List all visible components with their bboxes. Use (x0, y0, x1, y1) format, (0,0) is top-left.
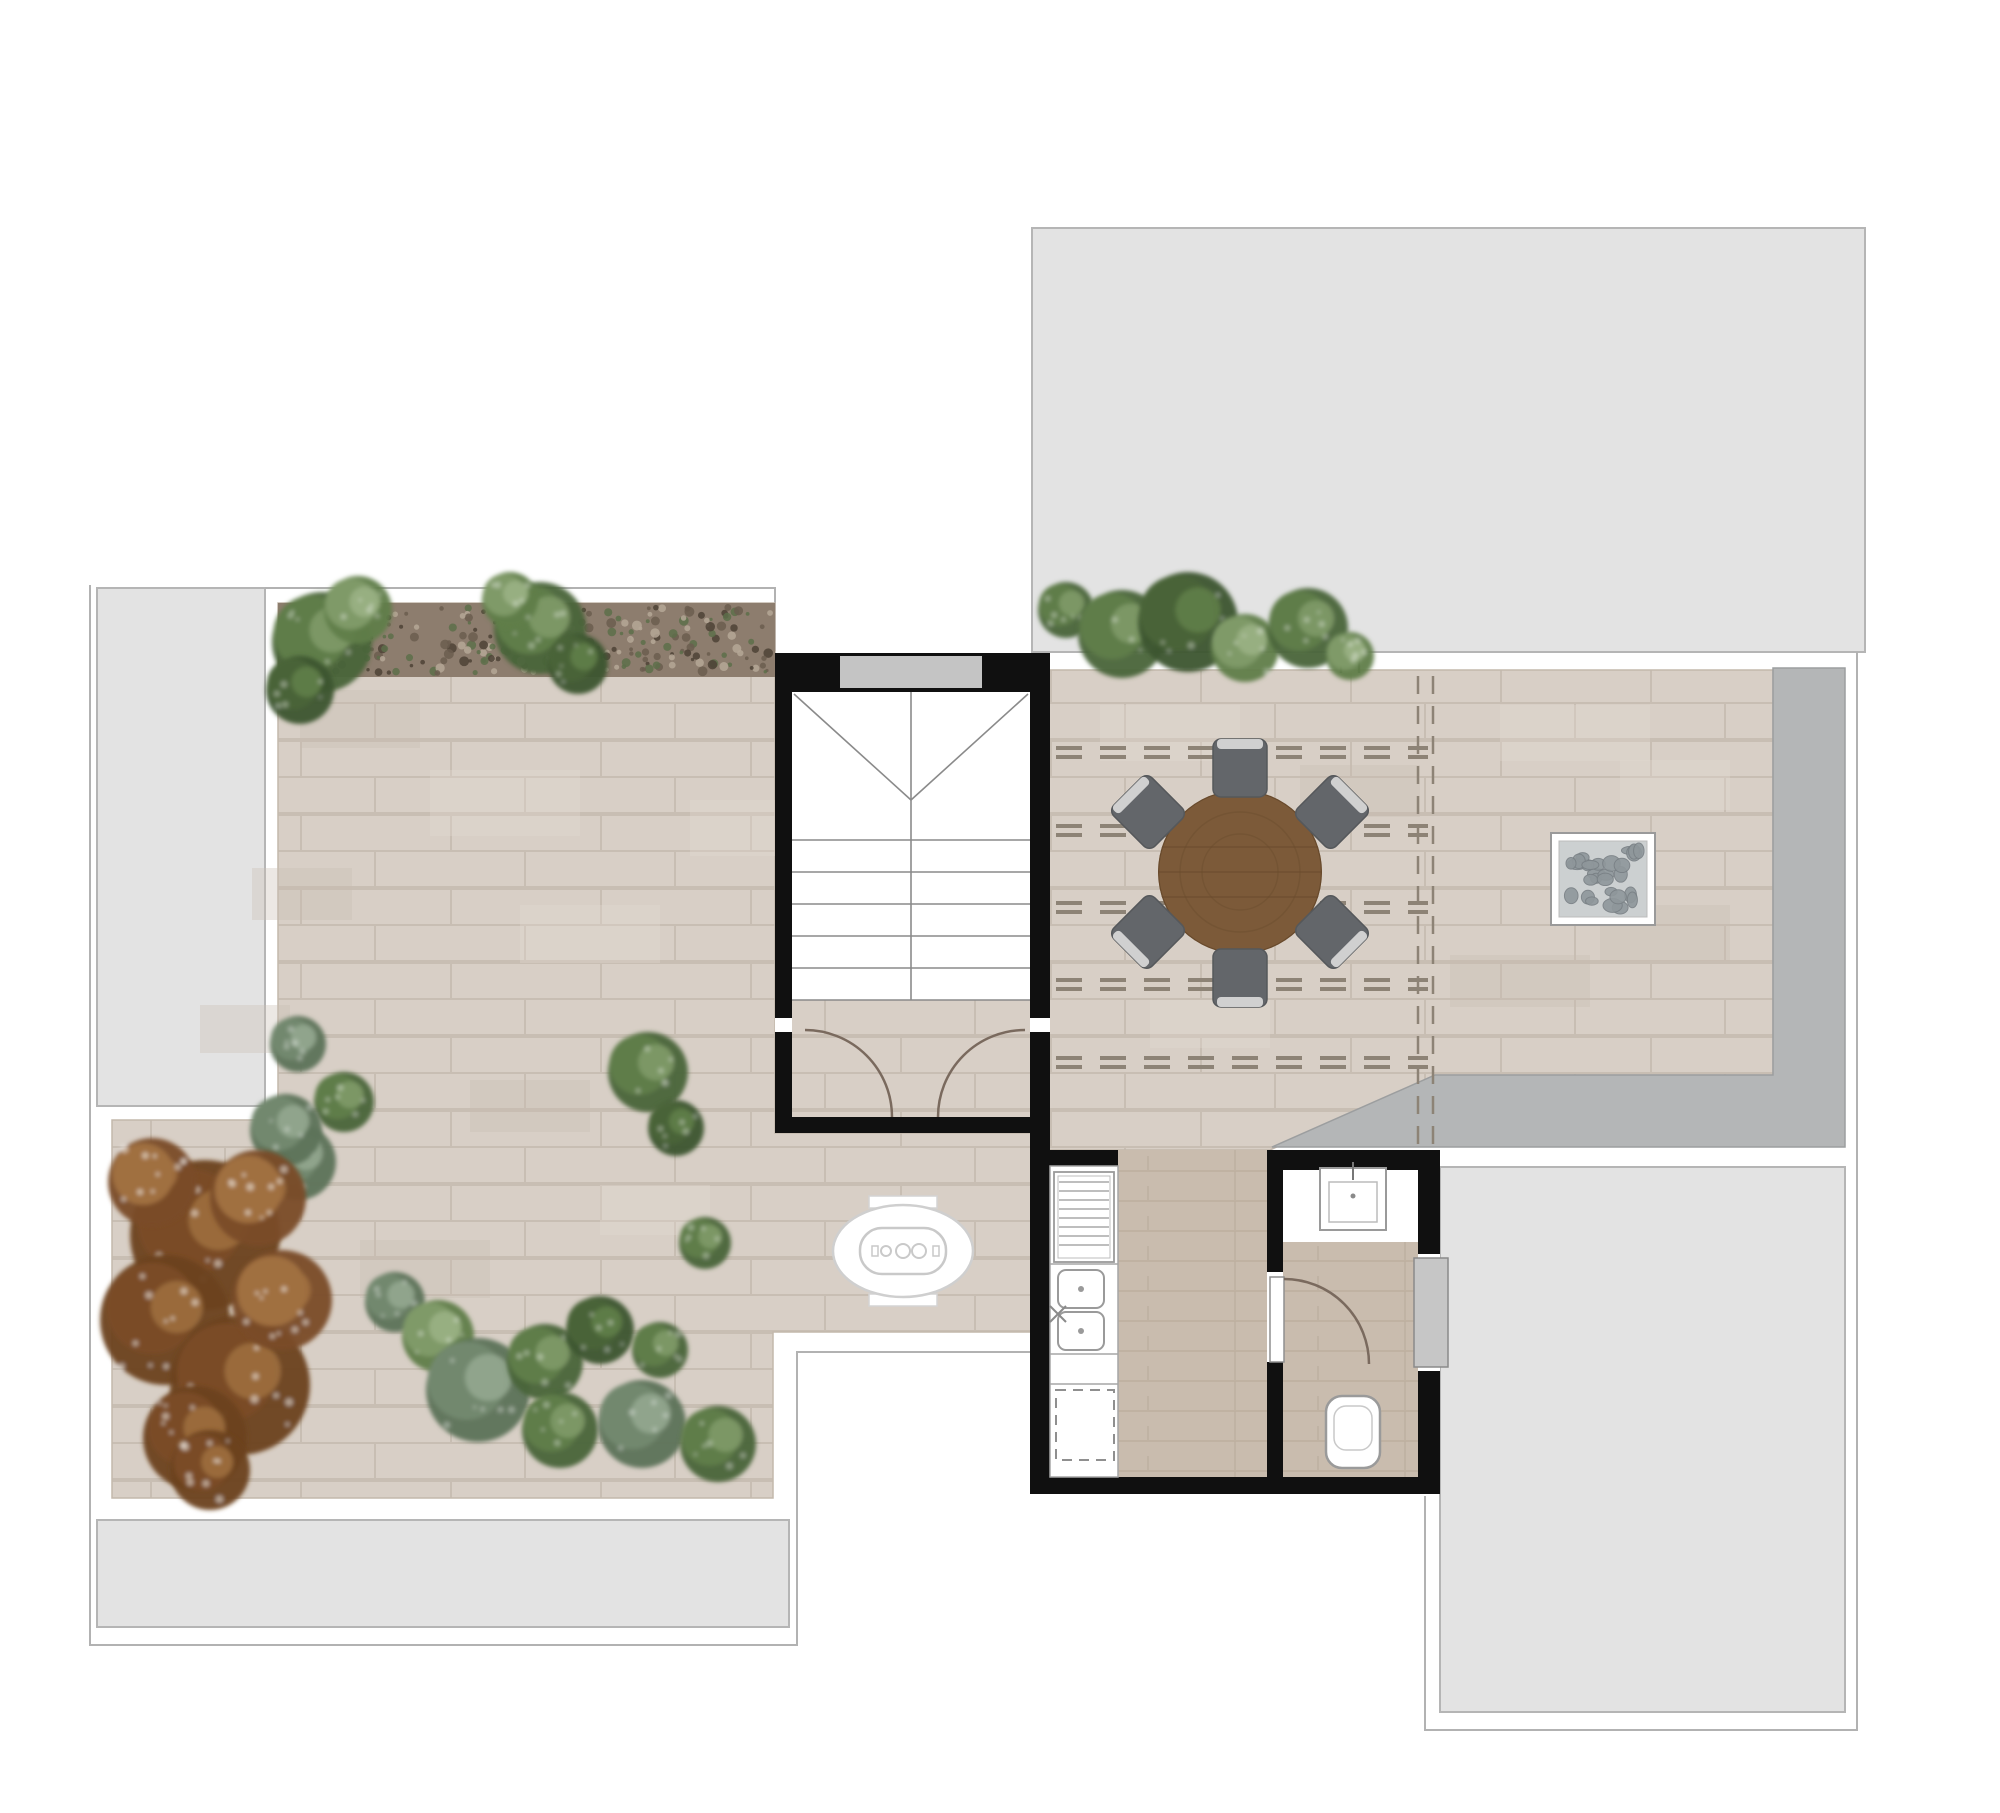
bush-speck (273, 1144, 279, 1150)
gravel-speck (642, 667, 646, 671)
bathroom-door-leaf (1270, 1277, 1284, 1362)
autumn-tree (108, 1138, 196, 1226)
gravel-speck (681, 615, 687, 621)
gravel-speck (383, 635, 387, 639)
bush-speck (288, 613, 294, 619)
gravel-speck (745, 656, 749, 660)
gravel-speck (404, 612, 408, 616)
paving-shade-patch (252, 868, 352, 920)
tree-speck (186, 1473, 192, 1479)
bush-speck (640, 1363, 645, 1368)
door-jamb (1030, 1018, 1050, 1032)
tree-speck (298, 1310, 303, 1315)
wall-kitchen-left (1030, 1133, 1050, 1494)
bush-speck (620, 1343, 623, 1346)
bush-speck (651, 1400, 656, 1405)
gravel-speck (468, 632, 478, 642)
gravel-speck (608, 628, 617, 637)
bush-speck (1234, 641, 1238, 645)
bush-speck (508, 1406, 515, 1413)
tree-speck (214, 1260, 222, 1268)
gravel-speck (635, 651, 641, 657)
sink-drain-dot (1078, 1328, 1084, 1334)
gravel-speck (473, 670, 478, 675)
bush-speck (554, 612, 560, 618)
gravel-speck (653, 605, 659, 611)
gravel-speck (719, 662, 728, 671)
bush-speck (740, 1453, 746, 1459)
bush-speck (1361, 649, 1367, 655)
bush-highlight (638, 1044, 674, 1080)
bush-speck (450, 1358, 454, 1362)
pebble-stone (1564, 888, 1578, 904)
tree-speck (119, 1363, 125, 1369)
gravel-speck (629, 651, 633, 655)
bush-speck (285, 1127, 290, 1132)
bush (270, 1016, 326, 1072)
bush (266, 656, 334, 724)
gravel-speck (606, 618, 616, 628)
tree-speck (270, 1334, 275, 1339)
gravel-speck (439, 606, 444, 611)
gravel-speck (614, 665, 619, 670)
bush-speck (361, 1098, 365, 1102)
bush-speck (1188, 642, 1195, 649)
tree-speck (285, 1422, 289, 1426)
bush-highlight (1059, 591, 1084, 616)
gravel-speck (651, 617, 660, 626)
bush-highlight (277, 1105, 309, 1137)
bush-speck (1061, 617, 1066, 622)
bush-speck (274, 691, 280, 697)
bush-speck (325, 1097, 330, 1102)
dishwasher-dashed-outline (1056, 1390, 1114, 1460)
tree-speck (260, 1216, 263, 1219)
bush-speck (663, 1134, 667, 1138)
paving-shade-patch (520, 905, 660, 963)
bush-speck (418, 1331, 424, 1337)
gravel-speck (651, 639, 656, 644)
gravel-speck (387, 670, 391, 674)
bush-speck (1243, 634, 1246, 637)
bush-speck (376, 1292, 381, 1297)
bush-speck (494, 582, 501, 589)
chair-backrest (1217, 997, 1263, 1007)
bush-speck (358, 598, 361, 601)
bush-speck (1051, 612, 1057, 618)
tree-speck (273, 1393, 279, 1399)
bush-speck (683, 1128, 689, 1134)
gravel-speck (653, 661, 661, 669)
tree-speck (164, 1404, 168, 1408)
gravel-speck (488, 655, 495, 662)
bush-speck (644, 1046, 650, 1052)
gravel-speck (646, 619, 650, 623)
tree-speck (277, 1331, 281, 1335)
gravel-speck (709, 618, 712, 621)
gravel-speck (380, 656, 385, 661)
bush-speck (560, 610, 566, 616)
tree-speck (164, 1319, 168, 1323)
bush-speck (675, 1331, 682, 1338)
bush-speck (366, 607, 372, 613)
gravel-speck (381, 645, 388, 652)
bush-speck (702, 1444, 706, 1448)
gravel-speck (706, 622, 715, 631)
gravel-speck (459, 632, 467, 640)
tree-speck (216, 1496, 223, 1503)
gravel-speck (399, 625, 403, 629)
tree-speck (148, 1363, 152, 1367)
tree-highlight (151, 1281, 203, 1333)
tree-speck (254, 1345, 259, 1350)
gravel-speck (728, 631, 736, 639)
tree-speck (251, 1395, 259, 1403)
bush-speck (658, 1068, 664, 1074)
gravel-speck (645, 664, 654, 673)
bush-speck (715, 1236, 720, 1241)
bush-speck (319, 696, 322, 699)
bush-speck (337, 1084, 344, 1091)
bush-speck (1319, 621, 1325, 627)
gravel-speck (392, 611, 398, 617)
tree-speck (252, 1373, 259, 1380)
bush-speck (325, 659, 330, 664)
bush-speck (296, 617, 300, 621)
tree-speck (281, 1286, 287, 1292)
gravel-speck (392, 668, 399, 675)
gravel-speck (496, 656, 501, 661)
bush-speck (663, 1080, 666, 1083)
bush-highlight (388, 1281, 415, 1308)
gravel-speck (621, 619, 628, 626)
tree-speck (190, 1405, 195, 1410)
bush-speck (694, 1453, 697, 1456)
gravel-speck (750, 666, 754, 670)
bush-speck (1260, 646, 1264, 650)
bush-speck (561, 680, 565, 684)
bush-highlight (1298, 600, 1334, 636)
bush-speck (369, 604, 373, 608)
bush-speck (513, 601, 519, 607)
bush-speck (663, 1413, 668, 1418)
tree-speck (226, 1439, 229, 1442)
bathroom-window (1414, 1258, 1448, 1367)
gravel-speck (748, 639, 754, 645)
bush (324, 576, 392, 644)
bush-speck (519, 598, 524, 603)
bush-highlight (571, 643, 598, 670)
bush-highlight (465, 1354, 512, 1401)
gravel-speck (752, 646, 759, 653)
gravel-speck (420, 660, 425, 665)
bush-highlight (350, 587, 381, 618)
pebble-stone (1614, 858, 1630, 872)
gravel-speck (669, 662, 676, 669)
tree-speck (121, 1197, 126, 1202)
tree-speck (255, 1291, 259, 1295)
gravel-speck (366, 668, 369, 671)
tree-speck (163, 1363, 169, 1369)
gravel-speck (479, 641, 488, 650)
tree-speck (145, 1291, 153, 1299)
paving-shade-patch (470, 1080, 590, 1132)
bush-speck (306, 1104, 312, 1110)
bush (648, 1100, 704, 1156)
bush-speck (403, 1280, 407, 1284)
bush-speck (556, 671, 561, 676)
elevator-shaft-band (840, 656, 982, 688)
tree-speck (158, 1402, 161, 1405)
tree-speck (151, 1189, 155, 1193)
gravel-speck (734, 606, 743, 615)
bush-speck (1129, 637, 1134, 642)
bush-speck (526, 615, 531, 620)
bush-speck (411, 1300, 417, 1306)
bush (680, 1406, 756, 1482)
kitchen-floor (1118, 1150, 1267, 1477)
bush-speck (381, 1314, 384, 1317)
gravel-speck (480, 649, 487, 656)
gravel-speck (682, 633, 691, 642)
bush (548, 634, 608, 694)
bush-speck (473, 1406, 476, 1409)
gravel-speck (627, 636, 634, 643)
gravel-speck (449, 624, 457, 632)
bush-speck (288, 1026, 294, 1032)
bush-speck (1139, 648, 1142, 651)
bush-speck (618, 1446, 623, 1451)
bush-speck (658, 1126, 664, 1132)
bush-speck (703, 1252, 709, 1258)
bush-highlight (536, 1336, 570, 1370)
gravel-speck (730, 624, 737, 631)
bush-speck (657, 1346, 662, 1351)
gravel-speck (685, 606, 691, 612)
tree-speck (180, 1288, 187, 1295)
tree-speck (156, 1172, 160, 1176)
tree-speck (206, 1258, 210, 1262)
bush-speck (524, 1350, 530, 1356)
bush-speck (701, 1226, 706, 1231)
bush-speck (1284, 625, 1290, 631)
autumn-tree (232, 1250, 332, 1350)
bush-speck (318, 679, 323, 684)
gravel-speck (612, 647, 617, 652)
sink-drain-dot (1351, 1194, 1356, 1199)
bush-speck (446, 1337, 451, 1342)
bush-speck (525, 582, 531, 588)
bush-speck (460, 1333, 463, 1336)
tree-highlight (142, 1156, 177, 1191)
tree-speck (187, 1479, 194, 1486)
bush (482, 572, 538, 628)
gravel-speck (642, 657, 648, 663)
gravel-speck (764, 670, 767, 673)
bush-speck (558, 645, 563, 650)
bush-speck (588, 649, 593, 654)
gravel-speck (447, 640, 451, 644)
bush-speck (686, 1234, 691, 1239)
tree-speck (191, 1210, 198, 1217)
gravel-speck (410, 633, 419, 642)
stair-landing-floor (792, 1000, 1030, 1117)
bush (522, 1392, 598, 1468)
floor-plan (0, 0, 2000, 1813)
paving-shade-patch (1620, 760, 1730, 810)
tree-speck (153, 1154, 157, 1158)
bush-speck (560, 664, 563, 667)
gravel-speck (435, 670, 441, 676)
autumn-tree (210, 1150, 306, 1246)
gravel-speck (761, 656, 766, 661)
bush-speck (1257, 628, 1264, 635)
pebble-stone (1627, 892, 1637, 908)
gravel-speck (684, 650, 691, 657)
pebble-stone (1582, 860, 1599, 869)
tree-highlight (225, 1343, 281, 1399)
tree-speck (175, 1164, 181, 1170)
bush (598, 1380, 686, 1468)
bush-speck (559, 1420, 563, 1424)
gravel-speck (724, 604, 731, 611)
gravel-speck (680, 651, 684, 655)
gravel-speck (465, 613, 473, 621)
tree-speck (140, 1273, 146, 1279)
pebble-stone (1610, 890, 1626, 904)
bush-speck (688, 1224, 695, 1231)
gravel-speck (629, 629, 634, 634)
paving-shade-patch (1500, 705, 1650, 761)
tree-speck (142, 1152, 149, 1159)
bush-speck (374, 1286, 380, 1292)
tree-speck (181, 1443, 189, 1451)
gravel-speck (708, 660, 717, 669)
wall-core-bottom (1030, 1477, 1440, 1494)
tree-speck (245, 1210, 251, 1216)
gravel-speck (698, 666, 708, 676)
bush-speck (541, 1379, 548, 1386)
gravel-speck (698, 612, 705, 619)
bush-speck (629, 1409, 635, 1415)
gravel-speck (388, 633, 394, 639)
gravel-speck (410, 664, 414, 668)
bush-speck (1303, 638, 1308, 643)
bush-speck (528, 642, 535, 649)
bush-speck (581, 1345, 586, 1350)
bush-speck (1215, 593, 1220, 598)
bush-speck (291, 1040, 298, 1047)
gravel-speck (480, 657, 488, 665)
roof-bottom-right (1440, 1167, 1845, 1712)
paving-shade-patch (1450, 955, 1590, 1007)
gravel-speck (641, 640, 646, 645)
tree-speck (280, 1166, 287, 1173)
gravel-speck (458, 642, 466, 650)
gravel-speck (617, 650, 622, 655)
bush-speck (652, 1428, 656, 1432)
door-jamb (775, 1018, 792, 1032)
bush-speck (679, 1119, 685, 1125)
wall-partition-lower (1267, 1362, 1283, 1477)
bush-speck (554, 1440, 560, 1446)
bush-speck (285, 1040, 289, 1044)
gravel-speck (468, 621, 471, 624)
bush-speck (663, 1144, 667, 1148)
bush-speck (706, 1440, 713, 1447)
gravel-speck (707, 652, 711, 656)
gravel-speck (696, 659, 704, 667)
dining-chair (1213, 739, 1267, 797)
gravel-speck (620, 632, 623, 635)
tree-highlight (271, 1270, 311, 1310)
gravel-speck (684, 625, 690, 631)
bush-speck (674, 1354, 678, 1358)
bush (1326, 632, 1374, 680)
bush-speck (668, 1331, 672, 1335)
bush-speck (1317, 611, 1320, 614)
bush-speck (700, 1421, 705, 1426)
tree-speck (242, 1173, 246, 1177)
tree-speck (268, 1184, 274, 1190)
autumn-tree (170, 1430, 250, 1510)
bush-speck (269, 1119, 272, 1122)
gravel-speck (693, 652, 700, 659)
bush-speck (565, 1382, 571, 1388)
gravel-speck (586, 611, 592, 617)
tree-speck (170, 1316, 174, 1320)
tree-speck (229, 1180, 236, 1187)
bush-highlight (653, 1331, 678, 1356)
bush (314, 1072, 374, 1132)
bush-speck (665, 1392, 672, 1399)
pebble-stone (1634, 843, 1644, 859)
bush-speck (415, 1350, 418, 1353)
tree-speck (181, 1158, 187, 1164)
bush (566, 1296, 634, 1364)
gravel-speck (375, 668, 383, 676)
pebble-stone (1566, 858, 1576, 870)
bush-speck (1220, 616, 1224, 620)
bush-speck (335, 1095, 340, 1100)
tree-speck (169, 1430, 173, 1434)
bush-speck (497, 1407, 503, 1413)
paving-shade-patch (430, 770, 580, 836)
gravel-speck (638, 626, 642, 630)
wall-bathroom-right-upper (1418, 1150, 1440, 1256)
bush-speck (574, 644, 577, 647)
gravel-speck (647, 612, 652, 617)
gravel-speck (460, 613, 466, 619)
bush-speck (352, 1111, 358, 1117)
gravel-speck (760, 624, 765, 629)
gravel-speck (377, 656, 381, 660)
gravel-speck (746, 612, 750, 616)
bush-speck (1112, 617, 1118, 623)
gravel-speck (491, 668, 497, 674)
bush-speck (1161, 640, 1165, 644)
tree-speck (243, 1319, 249, 1325)
wall-partition-upper (1267, 1150, 1283, 1272)
bush-highlight (551, 1404, 585, 1438)
tree-speck (285, 1398, 293, 1406)
bush-speck (480, 1407, 485, 1412)
bush-speck (677, 1356, 682, 1361)
gravel-speck (760, 663, 766, 669)
bush-speck (1228, 652, 1232, 656)
tree-speck (277, 1178, 283, 1184)
bush-highlight (429, 1311, 461, 1343)
